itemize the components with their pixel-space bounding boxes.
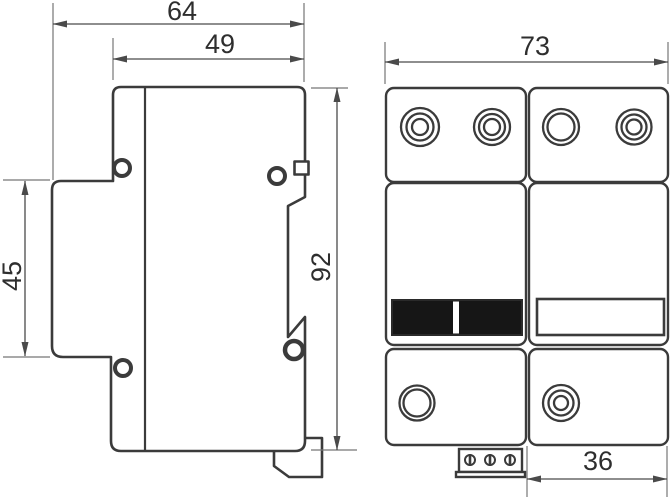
dim-side-total-width-label: 64: [167, 0, 197, 26]
dim-side-body-width-label: 49: [205, 29, 235, 59]
dim-side-clip-height-label: 45: [0, 261, 27, 291]
indicator-slot: [453, 302, 459, 334]
dimension-side-body-width: 49: [113, 29, 304, 80]
indicator-window-right: [537, 299, 664, 335]
indicator-window-left: [392, 300, 522, 335]
dim-side-total-height-label: 92: [306, 252, 336, 282]
dimension-side-clip-height: 45: [0, 180, 50, 357]
side-view-latch-notch: [295, 162, 309, 175]
side-view-body-outline: [52, 87, 305, 451]
technical-drawing: 64 49 45 92: [0, 0, 671, 500]
aux-terminal-block: [456, 449, 525, 477]
side-screw-top-rear: [269, 168, 285, 184]
dimension-side-total-height: 92: [306, 88, 357, 450]
front-view: 73 36: [385, 31, 668, 497]
left-module-bottom-section: [386, 349, 526, 445]
side-screw-din-clip: [285, 341, 303, 359]
left-module-top-section: [386, 88, 526, 182]
drawing-canvas: 64 49 45 92: [0, 0, 671, 500]
dimension-front-total-width: 73: [385, 31, 668, 84]
aux-terminal-screws: [465, 454, 515, 466]
dim-front-module-width-label: 36: [583, 446, 613, 476]
side-screw-bottom-front: [115, 360, 131, 376]
side-view: 64 49 45 92: [0, 0, 357, 477]
side-screw-top-front: [114, 160, 130, 176]
dimension-front-module-width: 36: [527, 446, 667, 497]
dim-front-total-width-label: 73: [520, 31, 550, 61]
